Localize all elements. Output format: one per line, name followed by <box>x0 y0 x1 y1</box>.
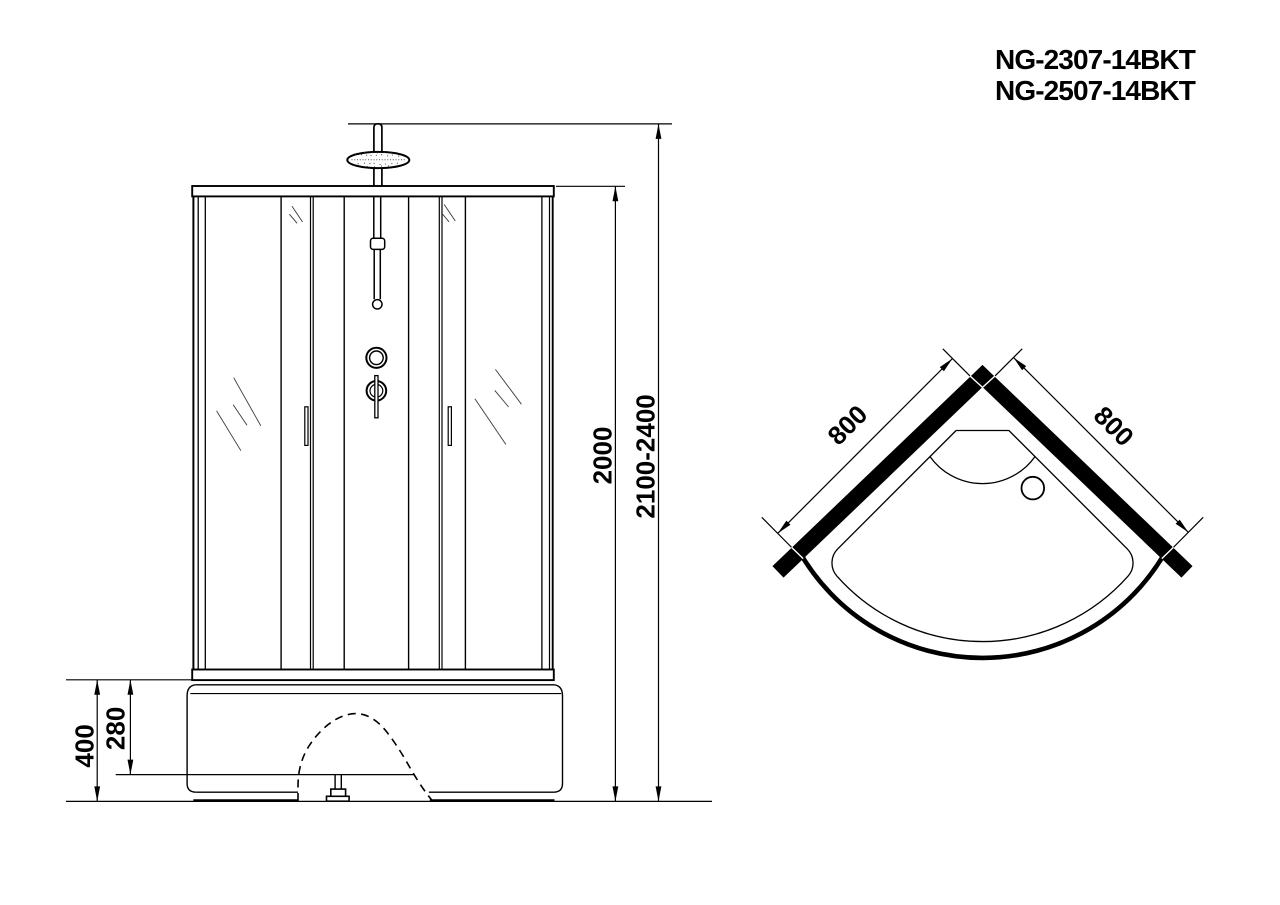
svg-text:NG-2307-14BKT: NG-2307-14BKT <box>995 44 1196 75</box>
svg-text:2100-2400: 2100-2400 <box>631 394 661 518</box>
svg-text:NG-2507-14BKT: NG-2507-14BKT <box>995 75 1196 106</box>
svg-text:2000: 2000 <box>588 427 618 485</box>
svg-text:280: 280 <box>101 707 131 750</box>
svg-text:400: 400 <box>70 724 100 767</box>
